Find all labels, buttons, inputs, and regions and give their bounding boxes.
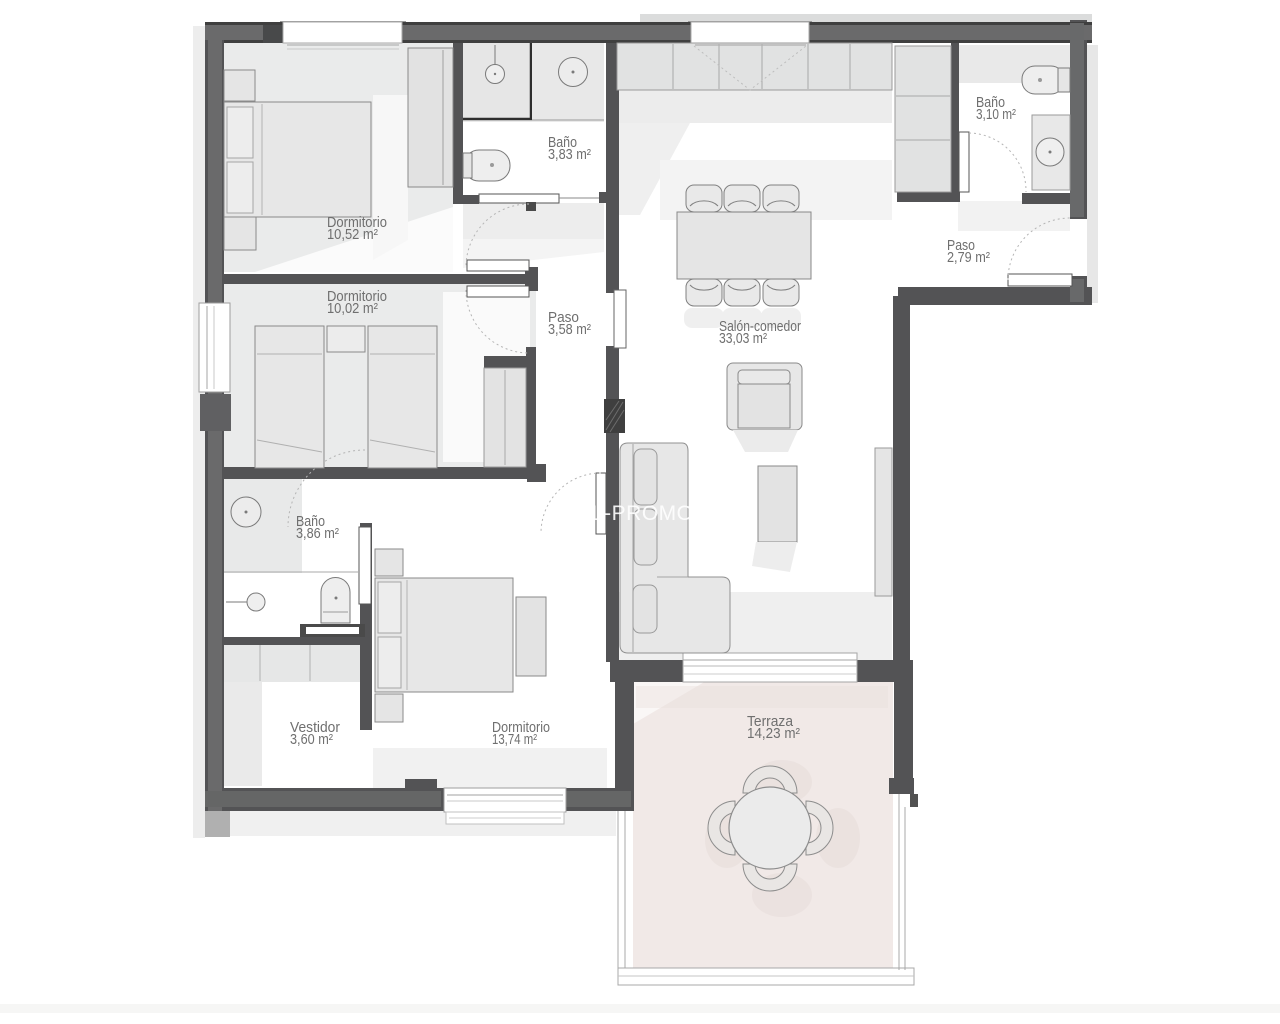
svg-text:14,23 m²: 14,23 m² [747, 726, 800, 742]
svg-text:33,03 m²: 33,03 m² [719, 331, 767, 347]
svg-text:10,52 m²: 10,52 m² [327, 227, 378, 243]
svg-text:3,58 m²: 3,58 m² [548, 322, 591, 338]
svg-text:3,83 m²: 3,83 m² [548, 147, 591, 163]
svg-text:13,74 m²: 13,74 m² [492, 732, 537, 748]
svg-text:10,02 m²: 10,02 m² [327, 301, 378, 317]
svg-text:3,60 m²: 3,60 m² [290, 732, 333, 748]
svg-text:3,10 m²: 3,10 m² [976, 107, 1016, 123]
svg-text:2,79 m²: 2,79 m² [947, 250, 990, 266]
svg-text:L-PROMOT: L-PROMOT [592, 502, 707, 525]
svg-text:3,86 m²: 3,86 m² [296, 526, 339, 542]
